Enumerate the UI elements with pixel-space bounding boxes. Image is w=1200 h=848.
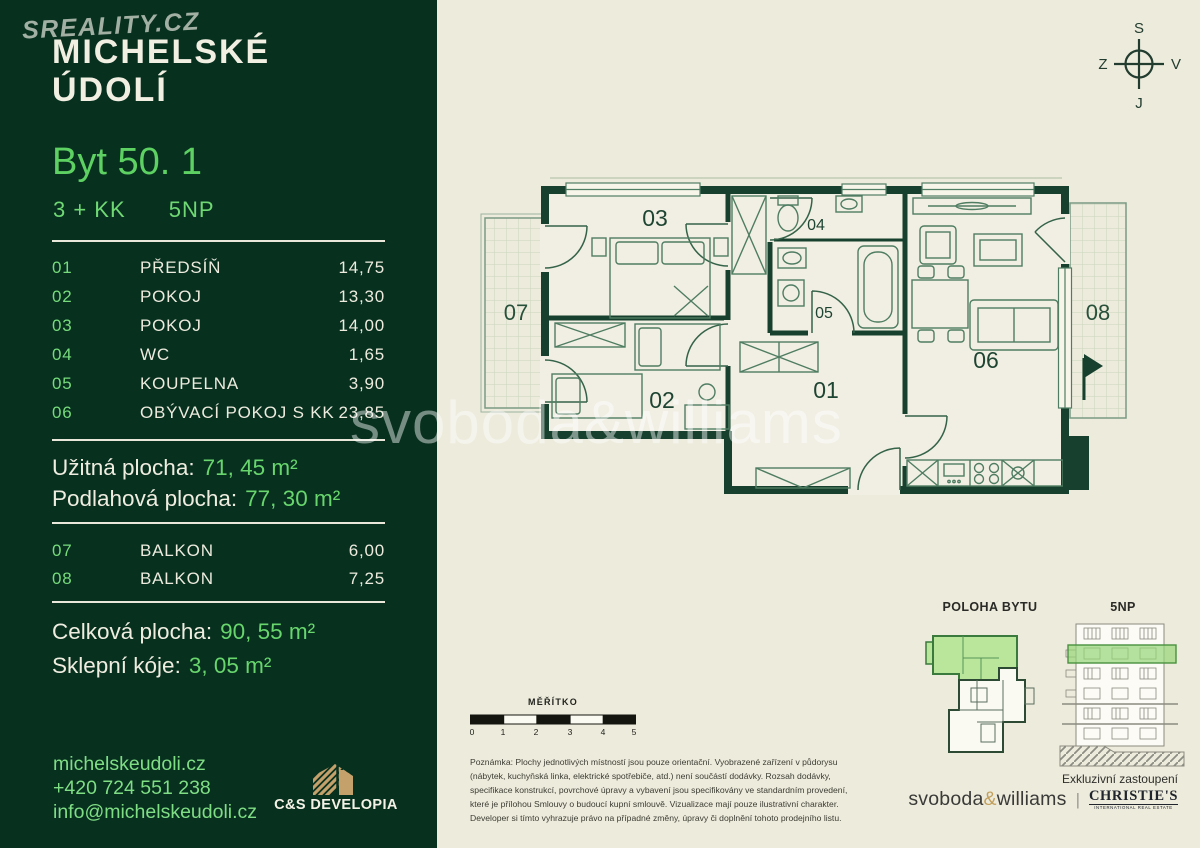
christies-logo: CHRISTIE'S INTERNATIONAL REAL ESTATE: [1089, 789, 1178, 811]
scale-tick: 5: [632, 727, 637, 737]
room-number: 01: [52, 258, 140, 278]
unit-title: Byt 50. 1: [52, 141, 202, 184]
ground-hatch: [1060, 746, 1184, 766]
developer-house-icon: [310, 762, 356, 796]
room-number: 07: [52, 541, 140, 561]
room-table: 01 PŘEDSÍŇ 14,75 02 POKOJ 13,30 03 POKOJ…: [52, 253, 385, 427]
room-name: PŘEDSÍŇ: [140, 258, 338, 278]
table-row: 08 BALKON 7,25: [52, 565, 385, 593]
sales-sheet-page: SREALITY.CZ MICHELSKÉ ÚDOLÍ Byt 50. 1 3 …: [0, 0, 1200, 848]
plan-label-05: 05: [815, 305, 833, 322]
room-name: POKOJ: [140, 316, 338, 336]
scale-tick: 0: [470, 727, 475, 737]
unit-position-diagram: [925, 618, 1055, 768]
room-number: 03: [52, 316, 140, 336]
total-area-value: 90, 55 m²: [220, 619, 315, 644]
position-diagram-label: POLOHA BYTU: [925, 600, 1055, 614]
unit-disposition: 3 + KK: [53, 197, 126, 222]
project-title-line1: MICHELSKÉ: [52, 33, 270, 71]
cellar-value: 3, 05 m²: [189, 653, 272, 678]
room-area: 14,00: [338, 316, 385, 336]
compass-west: Z: [1098, 56, 1107, 73]
developer-logo-text: C&S DEVELOPIA: [256, 797, 416, 813]
christies-logo-sub: INTERNATIONAL REAL ESTATE: [1094, 806, 1172, 810]
total-area-label: Celková plocha:: [52, 619, 212, 644]
table-row: 05 KOUPELNA 3,90: [52, 369, 385, 398]
room-area: 3,90: [349, 374, 385, 394]
divider: [52, 601, 385, 603]
sidebar: SREALITY.CZ MICHELSKÉ ÚDOLÍ Byt 50. 1 3 …: [0, 0, 437, 848]
room-area: 23,85: [338, 403, 385, 423]
unit-floor: 5NP: [169, 197, 215, 222]
room-area: 14,75: [338, 258, 385, 278]
total-area-line: Celková plocha:90, 55 m²: [52, 619, 315, 645]
room-area: 1,65: [349, 345, 385, 365]
disclaimer-note: Poznámka: Plochy jednotlivých místností …: [470, 756, 866, 826]
usable-area-value: 71, 45 m²: [203, 455, 298, 480]
sw-logo-ampersand: &: [983, 788, 996, 810]
project-title: MICHELSKÉ ÚDOLÍ: [52, 33, 270, 109]
scale-tick: 4: [601, 727, 606, 737]
plan-label-08: 08: [1086, 300, 1110, 325]
divider: [52, 439, 385, 441]
table-row: 02 POKOJ 13,30: [52, 282, 385, 311]
scale-bar-ticks: 0 1 2 3 4 5: [470, 727, 636, 739]
divider: [52, 240, 385, 242]
scale-tick: 3: [568, 727, 573, 737]
divider: [52, 522, 385, 524]
plan-label-04: 04: [807, 217, 825, 234]
room-number: 04: [52, 345, 140, 365]
plan-label-01: 01: [813, 377, 839, 403]
cellar-label: Sklepní kóje:: [52, 653, 181, 678]
svoboda-williams-logo: svoboda&williams: [908, 788, 1066, 811]
floor-plan: 03 02 04 05 01 06 07 08: [470, 168, 1170, 513]
unit-subtitle: 3 + KK 5NP: [53, 197, 215, 223]
plan-label-03: 03: [642, 205, 668, 231]
plan-label-07: 07: [504, 300, 528, 325]
floor-area-line: Podlahová plocha:77, 30 m²: [52, 486, 340, 512]
contact-block: michelskeudoli.cz +420 724 551 238 info@…: [53, 752, 257, 824]
room-name: POKOJ: [140, 287, 338, 307]
table-row: 04 WC 1,65: [52, 340, 385, 369]
room-number: 08: [52, 569, 140, 589]
room-name: OBÝVACÍ POKOJ S KK: [140, 403, 338, 423]
room-area: 7,25: [349, 569, 385, 589]
compass-south: J: [1135, 95, 1143, 112]
floor-area-label: Podlahová plocha:: [52, 486, 237, 511]
room-name: BALKON: [140, 569, 349, 589]
floor-diagram-label: 5NP: [1058, 600, 1188, 614]
floor-area-value: 77, 30 m²: [245, 486, 340, 511]
project-title-line2: ÚDOLÍ: [52, 71, 270, 109]
sw-logo-part1: svoboda: [908, 788, 983, 810]
apartment-outline: [545, 190, 1065, 490]
room-name: BALKON: [140, 541, 349, 561]
highlighted-floor-band: [1068, 645, 1176, 663]
plan-label-02: 02: [649, 387, 675, 413]
room-number: 05: [52, 374, 140, 394]
room-area: 13,30: [338, 287, 385, 307]
contact-website: michelskeudoli.cz: [53, 752, 257, 776]
compass-north: S: [1134, 20, 1144, 37]
plan-label-06: 06: [973, 347, 999, 373]
contact-phone: +420 724 551 238: [53, 776, 257, 800]
logo-separator: |: [1076, 790, 1080, 810]
room-name: WC: [140, 345, 349, 365]
scale-tick: 1: [501, 727, 506, 737]
compass-east: V: [1171, 56, 1181, 73]
balcony-table: 07 BALKON 6,00 08 BALKON 7,25: [52, 537, 385, 593]
room-area: 6,00: [349, 541, 385, 561]
building-elevation-diagram: [1058, 618, 1188, 768]
scale-bar-label: MĚŘÍTKO: [470, 697, 636, 707]
usable-area-line: Užitná plocha:71, 45 m²: [52, 455, 298, 481]
scale-tick: 2: [534, 727, 539, 737]
christies-logo-main: CHRISTIE'S: [1089, 789, 1178, 806]
room-number: 06: [52, 403, 140, 423]
compass-icon: S J Z V: [1094, 16, 1186, 112]
cellar-line: Sklepní kóje:3, 05 m²: [52, 653, 271, 679]
table-row: 03 POKOJ 14,00: [52, 311, 385, 340]
sw-logo-part2: williams: [997, 788, 1067, 810]
table-row: 06 OBÝVACÍ POKOJ S KK 23,85: [52, 398, 385, 427]
contact-email: info@michelskeudoli.cz: [53, 800, 257, 824]
room-name: KOUPELNA: [140, 374, 349, 394]
scale-bar: [470, 714, 636, 726]
wall-stub: [1063, 436, 1089, 490]
room-number: 02: [52, 287, 140, 307]
table-row: 07 BALKON 6,00: [52, 537, 385, 565]
table-row: 01 PŘEDSÍŇ 14,75: [52, 253, 385, 282]
usable-area-label: Užitná plocha:: [52, 455, 195, 480]
exclusive-representation-label: Exkluzivní zastoupení: [900, 772, 1178, 786]
agency-logos: svoboda&williams | CHRISTIE'S INTERNATIO…: [900, 788, 1178, 811]
